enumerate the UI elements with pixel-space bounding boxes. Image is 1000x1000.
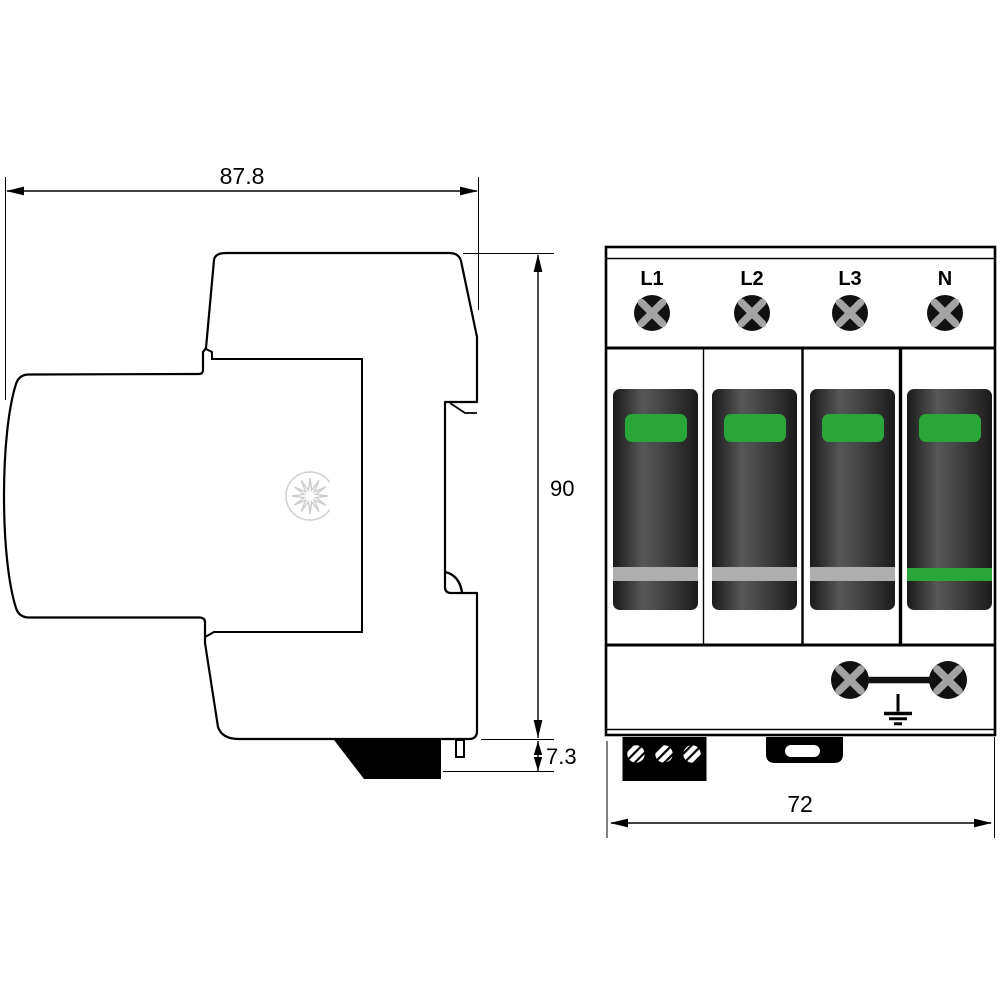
module-bottom-stripe xyxy=(907,568,992,581)
earth-screw-right xyxy=(929,661,967,699)
block-screw-3 xyxy=(683,745,702,764)
drawing-canvas: 87.8 90 7.3 L1 L2 xyxy=(0,0,1000,1000)
arrowhead-down xyxy=(534,720,543,738)
dimension-side-height: 90 xyxy=(463,254,574,740)
terminal-screw-L1 xyxy=(634,295,670,331)
arrowhead-up xyxy=(534,741,542,755)
module-bottom-stripe xyxy=(810,567,895,581)
terminal-label-N: N xyxy=(938,268,952,290)
module-cartridge-L2 xyxy=(712,389,797,610)
arrowhead-right xyxy=(974,819,992,828)
terminal-label-L1: L1 xyxy=(640,268,663,290)
dim-label-foot-height: 7.3 xyxy=(546,744,577,769)
dim-label-side-width: 87.8 xyxy=(220,163,265,189)
block-screw-1 xyxy=(627,745,646,764)
block-screw-2 xyxy=(655,745,674,764)
arrowhead-left xyxy=(6,187,24,196)
dim-label-side-height: 90 xyxy=(550,476,574,501)
rail-notch-bevel xyxy=(450,403,477,413)
module-bottom-stripe xyxy=(712,567,797,581)
status-indicator-window xyxy=(625,414,687,442)
mounting-foot xyxy=(334,740,441,779)
arrowhead-right xyxy=(460,187,478,196)
module-cartridge-N xyxy=(907,389,992,610)
status-indicator-window xyxy=(822,414,884,442)
front-view: L1 L2 L3 N xyxy=(606,247,995,781)
din-clip-slot xyxy=(785,745,820,757)
terminal-label-L3: L3 xyxy=(838,268,861,290)
side-view-outline xyxy=(4,253,477,739)
terminal-screw-L2 xyxy=(734,295,770,331)
dim-label-front-width: 72 xyxy=(787,791,813,817)
din-rail-clip xyxy=(766,737,843,763)
terminal-screw-L3 xyxy=(832,295,868,331)
earth-screw-left xyxy=(831,661,869,699)
rail-spring-clip xyxy=(445,572,462,592)
dimensional-drawing-page: 87.8 90 7.3 L1 L2 xyxy=(0,0,1000,1000)
remote-contact-terminal-block xyxy=(623,737,707,781)
module-cartridge-L3 xyxy=(810,389,895,610)
arrowhead-down xyxy=(534,757,542,771)
terminal-label-L2: L2 xyxy=(740,268,763,290)
status-indicator-window xyxy=(724,414,786,442)
side-view xyxy=(4,253,477,779)
status-indicator-window xyxy=(919,414,981,442)
module-bottom-stripe xyxy=(613,567,698,581)
terminal-screw-N xyxy=(927,295,963,331)
module-cartridge-L1 xyxy=(613,389,698,610)
arrowhead-left xyxy=(610,819,628,828)
release-pin xyxy=(456,740,464,757)
arrowhead-up xyxy=(534,254,543,272)
